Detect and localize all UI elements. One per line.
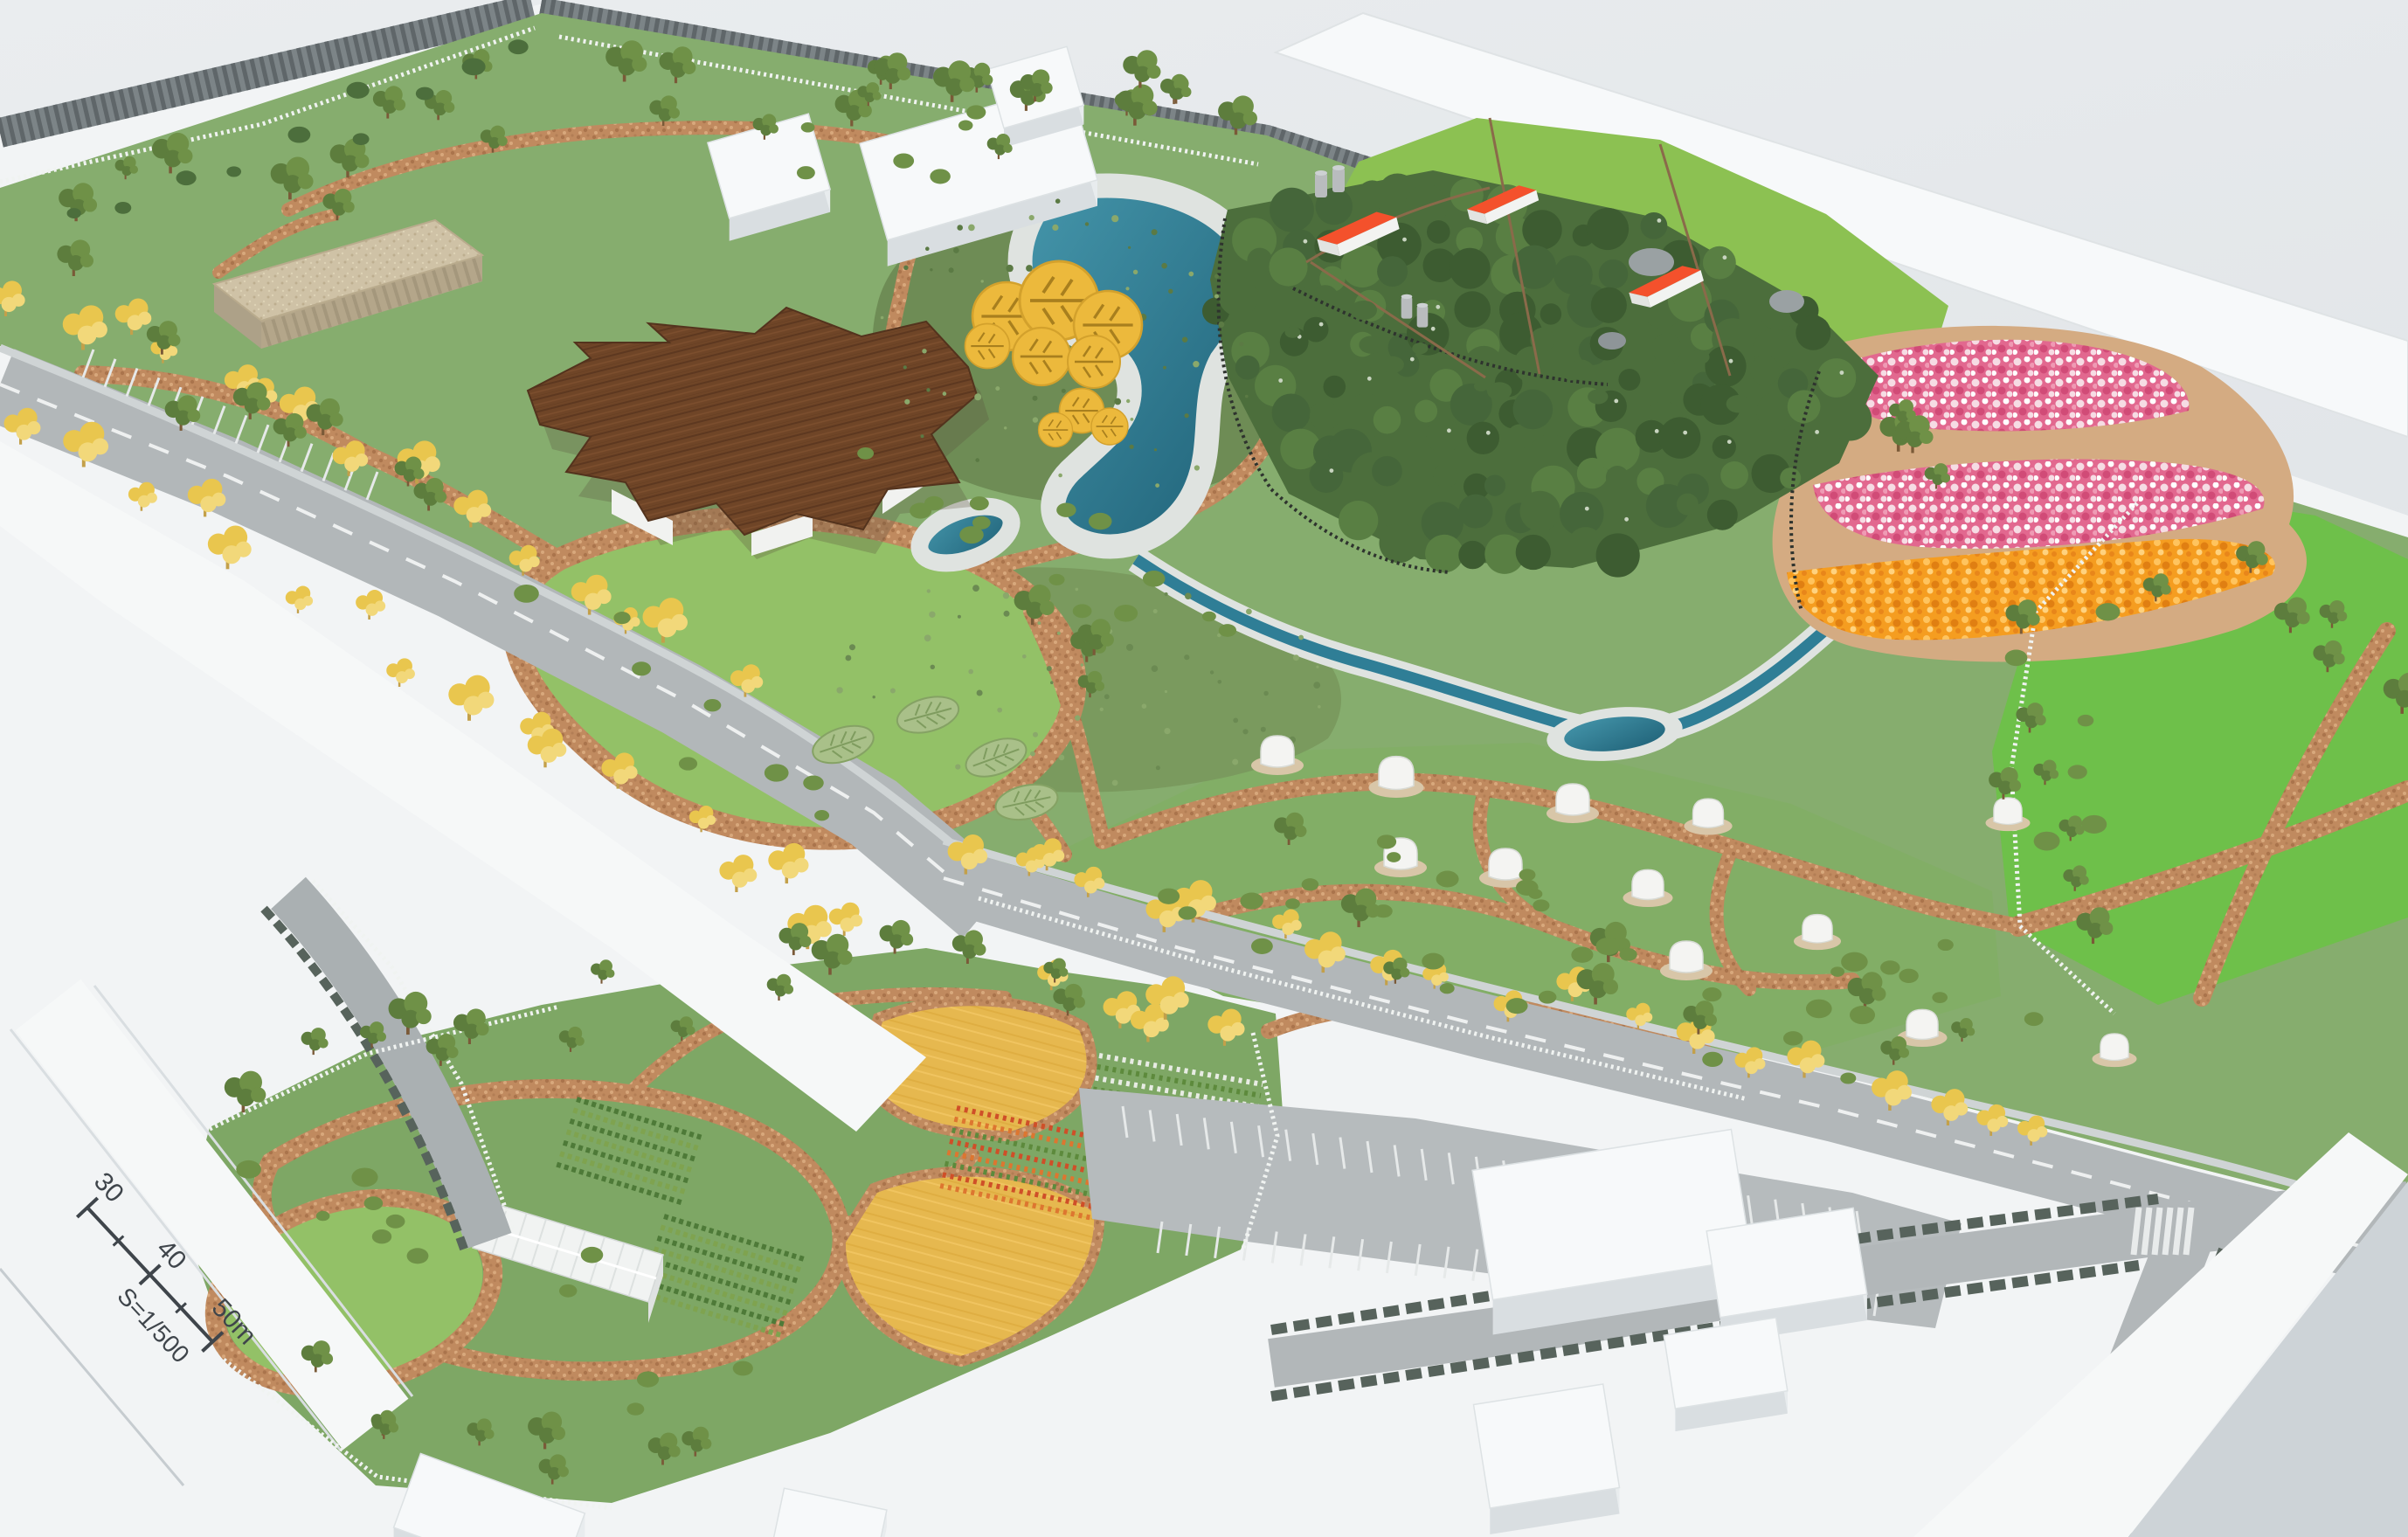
forest-canopy (1454, 291, 1491, 328)
forest-canopy (1426, 419, 1461, 453)
grass-texture (1104, 694, 1110, 699)
bush (1089, 513, 1112, 530)
grass-texture (995, 386, 1000, 391)
grass-texture (1030, 751, 1035, 757)
forest-canopy (1339, 501, 1378, 540)
forest-canopy (1513, 346, 1550, 383)
bush (559, 1284, 577, 1298)
bush (2081, 815, 2107, 834)
grass-texture (1318, 705, 1321, 709)
grass-texture (1133, 270, 1138, 274)
forest-blossom (1655, 429, 1659, 433)
grass-texture (1185, 413, 1189, 418)
bush (353, 133, 370, 145)
forest-canopy (1705, 346, 1746, 387)
bush (1412, 343, 1428, 354)
forest-canopy (1750, 356, 1780, 385)
bush (1387, 852, 1401, 862)
yellow-flower-canopy (1068, 336, 1120, 388)
forest-canopy (1450, 248, 1491, 289)
yellow-flower-canopy (965, 324, 1010, 369)
bush (67, 208, 81, 218)
bush (765, 764, 789, 781)
bush (1806, 1000, 1832, 1019)
bush (1440, 983, 1455, 994)
forest-blossom (1304, 239, 1308, 244)
silo (1315, 170, 1327, 197)
bush (613, 612, 630, 624)
forest-canopy (1304, 317, 1329, 343)
grass-texture (903, 266, 908, 270)
grass-texture (1214, 274, 1219, 279)
yellow-flower-canopy (1013, 328, 1070, 385)
grass-texture (968, 669, 973, 675)
forest-blossom (1431, 327, 1436, 331)
grass-texture (921, 434, 924, 438)
grass-texture (1214, 294, 1219, 299)
grass-texture (849, 644, 855, 650)
bush (1474, 381, 1488, 391)
grass-texture (1052, 225, 1058, 231)
forest-canopy (1817, 358, 1857, 398)
bush (1158, 889, 1180, 904)
bush (1048, 574, 1064, 585)
bush (2005, 650, 2028, 667)
grass-texture (949, 267, 954, 273)
grass-texture (1081, 663, 1083, 666)
grass-texture (1085, 222, 1089, 225)
bush (1619, 948, 1636, 961)
forest-canopy (1780, 467, 1801, 488)
forest-canopy (1219, 277, 1259, 317)
bush (288, 127, 311, 143)
bush (1506, 998, 1528, 1014)
grass-texture (1219, 322, 1225, 328)
grass-texture (1112, 780, 1118, 786)
grass-texture (1076, 588, 1079, 592)
bush (627, 1402, 645, 1415)
forest-blossom (1410, 357, 1415, 362)
forest-blossom (1723, 255, 1727, 260)
forest-blossom (1624, 517, 1629, 522)
grass-texture (1004, 426, 1007, 429)
grass-texture (997, 708, 1002, 713)
bush (893, 153, 914, 168)
bush (1519, 869, 1536, 881)
bush (733, 1361, 753, 1376)
forest-blossom (1729, 359, 1733, 363)
grass-texture (1164, 728, 1170, 734)
grass-texture (1161, 263, 1167, 269)
grass-texture (904, 399, 910, 405)
bush (1056, 503, 1076, 517)
forest-canopy (1587, 208, 1629, 250)
bush (226, 166, 241, 177)
forest-canopy (1713, 435, 1736, 459)
bush (930, 169, 951, 183)
grass-texture (953, 247, 959, 253)
grass-texture (930, 268, 932, 271)
bush (1702, 987, 1721, 1001)
forest-canopy (1641, 212, 1668, 239)
grass-texture (968, 225, 975, 232)
grass-texture (974, 393, 981, 400)
grass-texture (1058, 474, 1062, 478)
forest-canopy (1606, 466, 1629, 488)
grass-texture (1152, 665, 1159, 672)
bush (114, 202, 131, 214)
bush (966, 105, 986, 119)
grass-texture (922, 349, 926, 353)
grass-texture (1152, 229, 1158, 235)
grass-texture (1059, 755, 1065, 761)
forest-canopy (1324, 376, 1346, 398)
forest-canopy (1618, 369, 1640, 391)
forest-blossom (1402, 238, 1407, 242)
bush (1487, 382, 1512, 400)
grass-texture (943, 391, 947, 396)
bush (1240, 893, 1263, 910)
boulder (1629, 248, 1674, 276)
grass-texture (1114, 398, 1121, 405)
bush (704, 699, 722, 711)
bush (1422, 953, 1444, 970)
bush (857, 447, 874, 460)
forest-canopy (1247, 248, 1272, 273)
grass-texture (1006, 265, 1013, 272)
grass-texture (1210, 670, 1214, 674)
forest-canopy (1735, 419, 1773, 457)
bush (1377, 834, 1396, 848)
forest-canopy (1677, 494, 1699, 516)
grass-texture (873, 696, 875, 698)
grass-texture (1193, 361, 1199, 367)
grass-texture (957, 225, 963, 231)
forest-blossom (1585, 507, 1589, 511)
bush (1880, 960, 1899, 974)
forest-canopy (1707, 500, 1738, 530)
grass-texture (1168, 289, 1173, 294)
forest-canopy (1269, 247, 1307, 286)
forest-canopy (1720, 461, 1748, 489)
silo (1417, 303, 1429, 328)
forest-canopy (1272, 394, 1311, 433)
grass-texture (1004, 611, 1010, 617)
grass-texture (846, 655, 852, 661)
forest-blossom (1614, 399, 1618, 404)
forest-blossom (1486, 431, 1491, 435)
forest-canopy (1467, 422, 1499, 454)
grass-texture (1239, 342, 1243, 346)
grass-texture (977, 690, 983, 696)
grass-texture (1218, 680, 1222, 684)
bush (1284, 327, 1300, 338)
grass-texture (955, 765, 960, 770)
bush (679, 757, 697, 770)
grass-texture (925, 246, 930, 251)
bush (801, 122, 815, 133)
grass-texture (1263, 691, 1268, 696)
forest-canopy (1380, 523, 1420, 564)
bush (1073, 604, 1092, 618)
grass-texture (1126, 644, 1133, 651)
bush (407, 1248, 429, 1264)
yellow-flower-canopy (1039, 413, 1073, 447)
bush (1219, 624, 1236, 637)
forest-canopy (1610, 513, 1633, 536)
forest-canopy (1394, 440, 1417, 462)
bush (1932, 992, 1948, 1003)
grass-texture (1182, 337, 1187, 343)
bush (1564, 370, 1580, 381)
grass-texture (836, 687, 842, 693)
forest-canopy (1591, 287, 1627, 323)
silo (1332, 165, 1345, 192)
grass-texture (1246, 609, 1252, 615)
grass-texture (1165, 592, 1168, 596)
bush (959, 526, 984, 543)
bush (1571, 947, 1593, 963)
bush (1726, 395, 1751, 412)
grass-texture (1033, 732, 1038, 737)
bush (2024, 1012, 2044, 1026)
grass-texture (1033, 417, 1038, 422)
grass-texture (1057, 632, 1061, 635)
bush (1533, 899, 1549, 911)
grass-texture (929, 612, 935, 618)
forest-canopy (1377, 256, 1408, 287)
grass-texture (1055, 198, 1061, 204)
grass-texture (1156, 765, 1160, 770)
grass-texture (972, 585, 979, 592)
bush (2096, 603, 2121, 620)
bush (2068, 765, 2087, 779)
grass-texture (1142, 703, 1147, 709)
bush (386, 1215, 405, 1229)
grass-texture (881, 316, 884, 320)
context-building-roof (1474, 1384, 1620, 1508)
bush (1626, 393, 1642, 405)
bush (1380, 357, 1404, 373)
grass-texture (1050, 681, 1054, 684)
grass-texture (1261, 727, 1266, 732)
forest-blossom (1683, 431, 1687, 435)
grass-texture (1029, 215, 1034, 220)
forest-blossom (1330, 468, 1334, 473)
bush (1690, 350, 1710, 364)
bush (1302, 878, 1319, 890)
bush (1528, 889, 1542, 899)
grass-texture (924, 634, 931, 641)
grass-texture (1111, 215, 1118, 222)
forest-blossom (1436, 305, 1440, 309)
forest-canopy (1599, 260, 1629, 289)
forest-blossom (1319, 322, 1324, 327)
forest-canopy (1703, 246, 1736, 280)
grass-texture (1184, 654, 1189, 660)
grass-texture (1128, 246, 1131, 249)
forest-canopy (1310, 401, 1339, 431)
grass-texture (1233, 718, 1238, 723)
forest-canopy (1372, 456, 1402, 487)
grass-texture (1154, 448, 1157, 451)
bush (509, 39, 529, 54)
grass-texture (1022, 654, 1027, 659)
bush (814, 810, 829, 820)
forest-canopy (1659, 417, 1700, 458)
bush (1899, 969, 1918, 983)
grass-texture (1245, 395, 1249, 398)
bush (1539, 991, 1556, 1004)
bush (803, 775, 824, 790)
grass-texture (1126, 399, 1130, 403)
bush (1702, 1052, 1723, 1067)
bush (1841, 952, 1868, 972)
bush (1830, 966, 1844, 977)
bush (316, 1211, 330, 1221)
grass-texture (981, 280, 984, 282)
forest-canopy (1595, 428, 1640, 473)
grass-texture (1293, 654, 1299, 661)
forest-canopy (1596, 533, 1640, 577)
bush (1436, 871, 1459, 888)
forest-canopy (1374, 406, 1401, 434)
forest-blossom (1840, 370, 1844, 375)
bush (970, 496, 989, 510)
boulder (1598, 332, 1626, 350)
forest-canopy (1800, 426, 1824, 450)
grass-texture (1047, 666, 1052, 671)
bush (1359, 336, 1383, 353)
grass-texture (1165, 690, 1167, 693)
grass-texture (1194, 465, 1200, 470)
forest-blossom (1367, 377, 1372, 381)
forest-canopy (1235, 356, 1260, 380)
forest-canopy (1458, 495, 1492, 529)
bush (958, 121, 973, 131)
forest-blossom (1278, 378, 1283, 383)
forest-canopy (1425, 535, 1463, 573)
bush (416, 87, 434, 100)
grass-texture (1155, 483, 1159, 488)
bush (637, 1371, 659, 1387)
bush (364, 1196, 384, 1210)
grass-texture (1232, 759, 1238, 765)
bush (236, 1160, 261, 1179)
forest-canopy (1796, 315, 1830, 350)
forest-canopy (1458, 541, 1486, 569)
bush (1374, 904, 1393, 917)
bush (462, 59, 486, 76)
bush (372, 1229, 391, 1243)
grass-texture (903, 365, 907, 369)
bush (1938, 939, 1954, 951)
grass-texture (1075, 715, 1080, 720)
grass-texture (1062, 389, 1066, 393)
grass-texture (1100, 708, 1104, 711)
bush (1850, 1006, 1875, 1024)
grass-texture (1038, 621, 1041, 625)
forest-blossom (1815, 430, 1819, 434)
grass-texture (1033, 396, 1038, 401)
bush (797, 166, 815, 179)
bush (632, 661, 651, 675)
bush (176, 170, 197, 185)
bush (2078, 715, 2093, 726)
forest-canopy (1415, 400, 1437, 423)
forest-canopy (1829, 398, 1872, 441)
grass-texture (890, 689, 896, 694)
grass-texture (1130, 445, 1134, 449)
grass-texture (927, 589, 931, 592)
forest-canopy (1522, 210, 1561, 249)
bush (1595, 938, 1620, 955)
grass-texture (975, 458, 979, 462)
grass-texture (1163, 366, 1166, 370)
grass-texture (1298, 635, 1304, 640)
bush (1114, 605, 1138, 622)
bush (1143, 571, 1166, 587)
forest-canopy (1484, 475, 1505, 496)
bush (1840, 1072, 1856, 1084)
forest-canopy (1433, 463, 1457, 488)
bush (581, 1247, 604, 1264)
forest-canopy (1540, 303, 1561, 324)
scale-model-photo: 30 40 50m S=1/500 (0, 0, 2408, 1537)
grass-texture (1242, 729, 1248, 734)
grass-texture (1316, 666, 1318, 668)
forest-canopy (1513, 390, 1553, 430)
grass-texture (1125, 287, 1129, 290)
grass-texture (1153, 609, 1158, 613)
bush (1351, 301, 1377, 320)
grass-texture (931, 665, 935, 669)
forest-canopy (1652, 356, 1675, 378)
bush (1588, 390, 1608, 405)
grass-texture (1188, 272, 1194, 277)
bush (1202, 612, 1216, 622)
bush (1179, 906, 1197, 919)
forest-blossom (1657, 218, 1662, 223)
bush (2034, 832, 2060, 851)
grass-texture (958, 615, 961, 619)
grass-texture (1131, 418, 1134, 421)
bush (351, 1167, 377, 1187)
forest-canopy (1270, 188, 1314, 232)
grass-texture (926, 388, 930, 391)
boulder (1769, 290, 1804, 313)
grass-texture (1185, 592, 1192, 599)
bush (347, 82, 370, 99)
bush (1285, 898, 1300, 909)
grass-texture (1003, 592, 1009, 599)
forest-blossom (1727, 440, 1732, 444)
bush (910, 502, 931, 518)
grass-texture (1313, 682, 1320, 689)
forest-canopy (1427, 220, 1450, 244)
bush (514, 585, 539, 603)
bush (1251, 938, 1273, 954)
forest-canopy (1516, 535, 1551, 570)
forest-blossom (1447, 428, 1451, 433)
yellow-flower-canopy (1091, 408, 1128, 445)
forest-canopy (1520, 491, 1560, 531)
silo (1401, 294, 1413, 319)
bush (1783, 1031, 1803, 1045)
